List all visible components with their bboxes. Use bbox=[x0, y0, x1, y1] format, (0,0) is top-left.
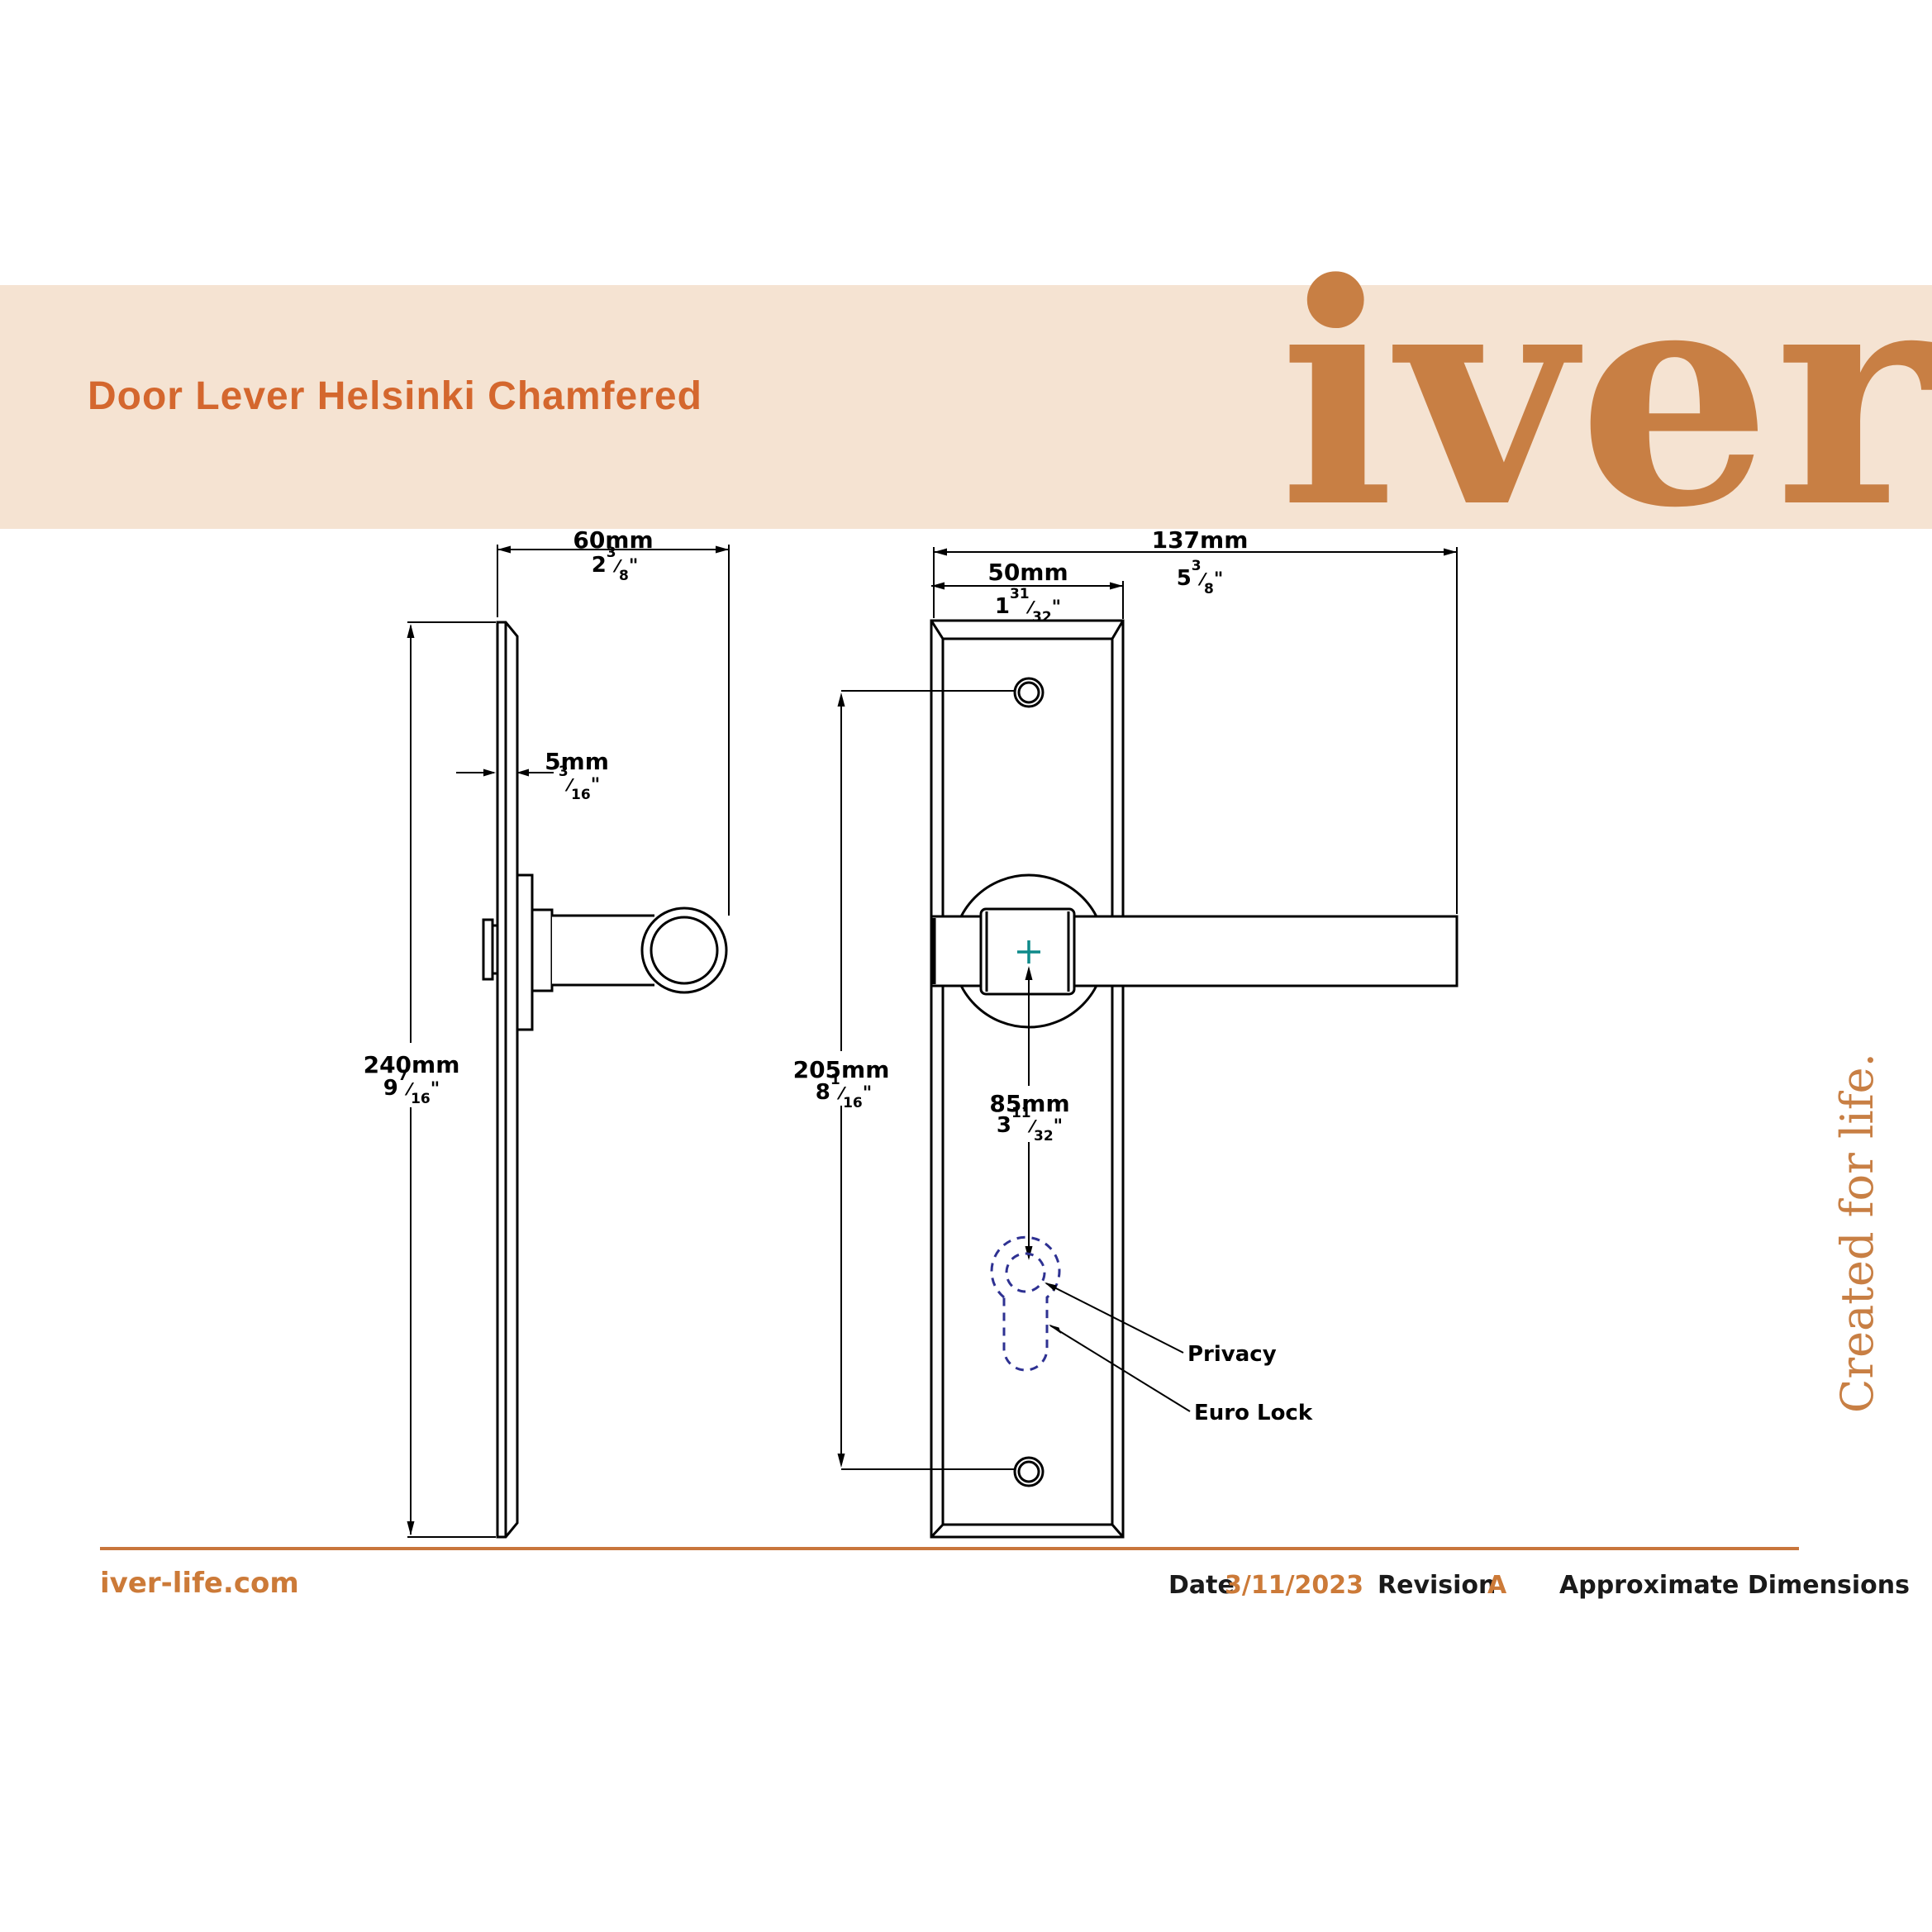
dim-5mm-inches: 3⁄16" bbox=[559, 773, 600, 797]
footer-divider bbox=[100, 1547, 1799, 1550]
dim-137mm-inches: 53⁄8" bbox=[1177, 568, 1224, 591]
date-value: 3/11/2023 bbox=[1225, 1571, 1363, 1600]
euro-lock-label: Euro Lock bbox=[1194, 1401, 1312, 1425]
lever-grip-end-inner bbox=[651, 917, 717, 983]
spec-sheet-page: Door Lever Helsinki Chamfered iver Creat… bbox=[0, 0, 1932, 1932]
privacy-label: Privacy bbox=[1187, 1342, 1277, 1367]
dim-50mm-inches: 131⁄32" bbox=[995, 596, 1061, 619]
side-view bbox=[407, 545, 730, 1537]
lever-arm-side bbox=[552, 916, 654, 985]
privacy-turn-side bbox=[483, 920, 497, 979]
technical-drawing bbox=[0, 0, 1932, 1932]
screw-hole-top bbox=[1015, 678, 1043, 707]
dim-240mm-label: 240mm bbox=[364, 1054, 460, 1077]
lever-neck-side bbox=[532, 910, 552, 991]
revision-label: Revision bbox=[1378, 1571, 1496, 1600]
backplate-front bbox=[931, 621, 1123, 1537]
dim-5mm-label: 5mm bbox=[545, 750, 609, 773]
backplate-side bbox=[497, 622, 517, 1537]
dim-85mm-inches: 311⁄32" bbox=[997, 1115, 1063, 1138]
dim-240mm-inches: 97⁄16" bbox=[383, 1078, 440, 1101]
dim-205mm-inches: 81⁄16" bbox=[816, 1082, 872, 1105]
website-link[interactable]: iver-life.com bbox=[100, 1567, 299, 1600]
rose-side bbox=[517, 875, 532, 1030]
dim-137mm-label: 137mm bbox=[1152, 529, 1249, 552]
dim-60mm-inches: 23⁄8" bbox=[592, 554, 639, 578]
front-view bbox=[838, 547, 1458, 1537]
dim-50mm-label: 50mm bbox=[987, 561, 1068, 584]
dim-205mm-label: 205mm bbox=[793, 1059, 890, 1082]
revision-value: A bbox=[1487, 1571, 1506, 1600]
dimensions-note: Approximate Dimensions bbox=[1559, 1571, 1910, 1600]
dim-60mm bbox=[497, 545, 729, 916]
lever-side bbox=[517, 875, 726, 1030]
screw-hole-bottom bbox=[1015, 1458, 1043, 1486]
